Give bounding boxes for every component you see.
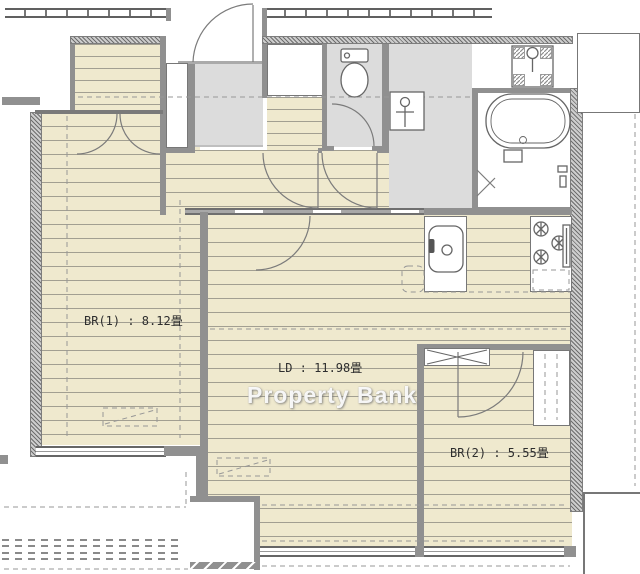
wall bbox=[372, 146, 389, 151]
floor-plan: BR(1) : 8.12畳 LD : 11.98畳 BR(2) : 5.55畳 … bbox=[0, 0, 640, 574]
bathroom-floor bbox=[478, 93, 570, 207]
sliding-door-track bbox=[185, 208, 424, 215]
wall bbox=[254, 496, 260, 570]
wall bbox=[564, 546, 576, 557]
wall bbox=[70, 44, 75, 114]
room-label-br2: BR(2) : 5.55畳 bbox=[450, 444, 549, 461]
void-notch bbox=[196, 502, 254, 562]
washer-zone-floor bbox=[472, 44, 570, 88]
kitchen-sink-unit bbox=[424, 216, 467, 292]
wall bbox=[382, 44, 389, 147]
wall bbox=[166, 8, 171, 21]
wall bbox=[478, 88, 570, 93]
entrance-door-arc bbox=[193, 4, 253, 62]
wall bbox=[166, 148, 195, 153]
washroom-floor bbox=[389, 44, 472, 214]
neighbor-area bbox=[577, 33, 640, 113]
wall bbox=[188, 63, 195, 150]
entry-storage bbox=[166, 63, 188, 148]
closet-sill bbox=[35, 110, 163, 114]
corridor-wall bbox=[265, 8, 492, 18]
room-label-br1: BR(1) : 8.12畳 bbox=[84, 312, 183, 329]
wall bbox=[196, 446, 206, 500]
hallway-floor bbox=[267, 97, 322, 153]
shoe-cabinet bbox=[267, 44, 323, 96]
counter bbox=[424, 348, 490, 366]
wall bbox=[322, 146, 334, 151]
wall bbox=[2, 97, 40, 105]
balcony-louver bbox=[2, 558, 180, 560]
exterior-wall bbox=[30, 112, 42, 457]
balcony-louver bbox=[2, 552, 180, 554]
genkan-step bbox=[195, 145, 263, 147]
wall bbox=[0, 455, 8, 464]
bedroom2-closet bbox=[533, 350, 570, 426]
room-label-ld: LD : 11.98畳 bbox=[278, 359, 362, 376]
lower-balcony-area bbox=[583, 492, 640, 574]
wall bbox=[417, 350, 424, 546]
watermark: Property Bank bbox=[247, 382, 417, 409]
entrance-genkan-floor bbox=[195, 63, 263, 147]
living-dining-floor bbox=[208, 214, 572, 546]
exterior-wall bbox=[570, 88, 583, 512]
wall bbox=[190, 562, 260, 569]
exterior-wall bbox=[262, 36, 573, 44]
wall bbox=[472, 88, 478, 212]
wall bbox=[424, 208, 572, 215]
window bbox=[260, 546, 417, 557]
kitchen-stove-unit bbox=[530, 216, 572, 292]
balcony-louver bbox=[2, 545, 180, 547]
window bbox=[36, 446, 166, 457]
toilet-room-floor bbox=[327, 44, 382, 147]
window bbox=[424, 546, 566, 557]
balcony-louver bbox=[2, 539, 180, 541]
exterior-wall bbox=[70, 36, 166, 44]
wall bbox=[322, 44, 327, 147]
corridor-wall bbox=[5, 8, 167, 18]
entrance-sill bbox=[178, 61, 266, 64]
closet-floor bbox=[75, 44, 160, 112]
